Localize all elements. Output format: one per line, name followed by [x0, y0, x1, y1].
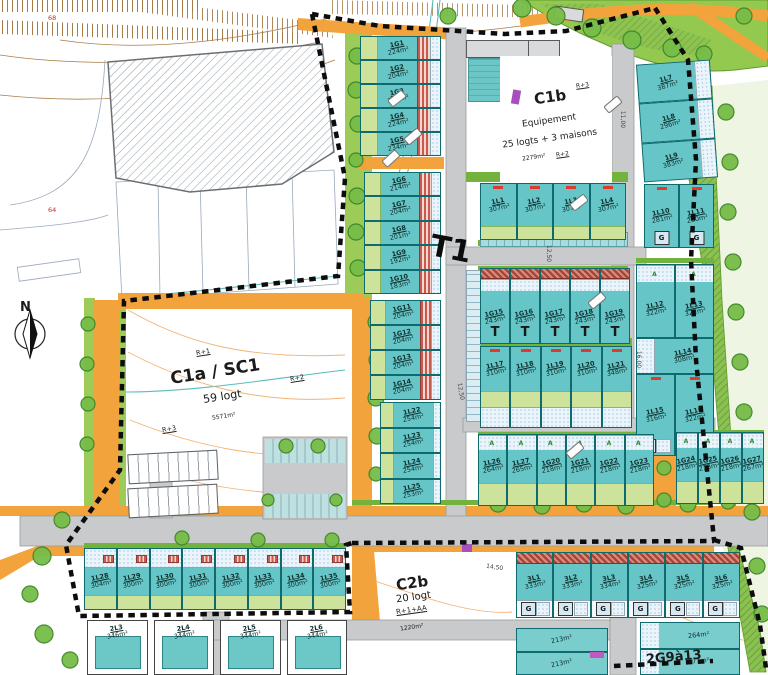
lot-strip-3l: 3L1333m² G 3L2333m² G 3L3334m² G: [516, 552, 740, 618]
lot-row-south-a: A 1L26264m² A 1L27265m² A 1G20218m² A 1G…: [478, 434, 654, 506]
garden-strip: [603, 391, 631, 406]
garden-strip: [365, 197, 381, 219]
lot-parcel: 1L14308m²: [636, 338, 714, 374]
garden-strip: [361, 109, 378, 131]
garage-box: G: [558, 602, 573, 616]
parking-cell: [541, 279, 569, 291]
lot-parcel: A 1G25218m²: [698, 432, 720, 504]
garden-strip: [365, 222, 381, 244]
lot-label: 1G6214m²: [388, 175, 412, 193]
lot-label: 1G2204m²: [386, 63, 410, 81]
parking-cell: [430, 109, 440, 131]
lot-row-g15: 1G15243m² T 1G16243m² T 1G17243m² T: [480, 268, 630, 344]
lot-label: 1G9192m²: [388, 248, 412, 266]
parking-cell: [699, 139, 717, 177]
dim-11-00: 11,00: [619, 111, 626, 128]
garden-strip: [554, 226, 589, 239]
lot-label: 1L22254m²: [401, 406, 425, 424]
garden-strip: [371, 376, 386, 399]
a-mark: A: [652, 271, 657, 278]
garden-strip: [721, 481, 741, 503]
garden-strip: [361, 37, 378, 59]
lot-parcel: 2L6344m²: [287, 620, 348, 675]
lot-parcel: 1L28304m²: [84, 548, 117, 610]
lot-parcel: 1L32300m²: [215, 548, 248, 610]
lot-parcel: 1G4224m²: [360, 108, 441, 132]
contour-label-68: 68: [48, 14, 56, 22]
brick-band: [601, 269, 629, 279]
lot-parcel: 2L3346m²: [87, 620, 148, 675]
lot-label: 1G20218m²: [539, 457, 563, 475]
a-mark: A: [607, 440, 612, 447]
lot-label: 3L5325m²: [672, 573, 696, 591]
parking-cell: [282, 549, 313, 568]
garage-roof-hatch: [168, 555, 179, 563]
lot-row-307: 1L1307m² 1L2307m² 1L3307m² 1L4307m²: [480, 183, 626, 240]
lot-label: 1G15243m²: [483, 308, 507, 326]
parking-cell: [430, 85, 440, 107]
garden-strip: [314, 595, 345, 609]
lot-parcel: 1G1224m²: [360, 36, 441, 60]
lot-label: 1L30300m²: [154, 572, 178, 590]
garage-roof-hatch: [103, 555, 114, 563]
lot-parcel: 1L8296m²: [639, 99, 716, 143]
lot-parcel: 1L9383m²: [641, 138, 718, 182]
parking-cell: [686, 602, 700, 616]
garage-row: G: [704, 600, 739, 617]
lot-label: 1L21348m²: [605, 360, 629, 378]
contour-label-64: 64: [48, 206, 56, 214]
garage-roof-hatch: [417, 109, 430, 131]
parking-cell: A: [699, 433, 719, 448]
garden-strip: [365, 246, 381, 268]
lot-parcel: 1L25253m²: [380, 479, 441, 505]
garden-strip: [371, 351, 386, 374]
lot-label: 1L18310m²: [514, 360, 538, 378]
parking-cell: [430, 61, 440, 83]
parking-cell: [648, 602, 662, 616]
brick-band: [517, 553, 552, 564]
lot-strip-west-l: 1L22254m² 1L23254m² 1L24254m² 1L25253m²: [380, 402, 441, 504]
lot-strip-east-edge: 1L7387m² 1L8296m² 1L9383m²: [636, 60, 718, 183]
parking-cell: [723, 602, 737, 616]
garage-roof-hatch: [419, 271, 431, 293]
c1a-garage-row2: [127, 484, 218, 519]
lot-label: 1L11280m²: [685, 207, 709, 225]
a-mark: A: [636, 440, 641, 447]
parking-cell: [511, 407, 539, 427]
parking-cell: [431, 351, 440, 374]
house-footprint: [295, 636, 341, 669]
garage-roof-hatch: [420, 376, 431, 399]
garage-box: G: [670, 602, 685, 616]
brick-band: [554, 553, 589, 564]
lot-parcel: 1L35300m²: [313, 548, 346, 610]
site-plan-map: 1G1224m² 1G2204m² 1G3214m² 1G4224m² 1G52: [0, 0, 768, 675]
lot-parcel: 1G10183m²: [364, 270, 441, 294]
lot-parcel: 3L4325m² G: [628, 552, 665, 618]
lot-parcel: 1G19243m² T: [600, 268, 630, 344]
garden-strip: [183, 595, 214, 609]
lot-parcel: 3L1333m² G: [516, 552, 553, 618]
garage-roof-hatch: [420, 351, 431, 374]
dim-16-00: 16,00: [635, 351, 642, 368]
garden-strip: [508, 483, 535, 505]
lot-east-mid: 1L14308m²: [636, 338, 714, 374]
garden-strip: [481, 226, 516, 239]
lot-parcel: 3L3334m² G: [591, 552, 628, 618]
parking-cell: [656, 439, 671, 453]
parking-cell: A: [538, 435, 565, 450]
lot-label: 3L6325m²: [709, 573, 733, 591]
lot-row-l17: 1L17310m² 1L18310m² 1L19310m² 1L20310m² …: [480, 346, 632, 428]
lot-parcel: 1L4307m²: [590, 183, 627, 240]
lot-label: 1L29300m²: [121, 572, 145, 590]
lot-label: 1L2307m²: [523, 196, 547, 214]
lot-label: 264m²: [688, 631, 710, 640]
parking-cell: [431, 271, 440, 293]
lot-label: 1L12322m²: [644, 300, 668, 318]
garage-roof-hatch: [136, 555, 147, 563]
lot-label: 1G11204m²: [391, 303, 415, 321]
garden-strip: [371, 301, 386, 324]
garden-strip: [361, 61, 378, 83]
lot-parcel: 1L1307m²: [480, 183, 517, 240]
garden-strip: [381, 480, 394, 504]
lot-parcel: 2L4344m²: [154, 620, 215, 675]
garden-strip: [151, 595, 182, 609]
lot-parcel: A 1L27265m²: [507, 434, 536, 506]
parking-cell: [694, 61, 712, 99]
a-mark: A: [489, 440, 494, 447]
lot-parcel: 1L29300m²: [117, 548, 150, 610]
garage-roof-hatch: [332, 555, 343, 563]
parking-cell: A: [626, 435, 653, 450]
garden-strip: [249, 595, 280, 609]
lot-label: 3L2333m²: [560, 573, 584, 591]
parking-cell: [574, 602, 588, 616]
garage-box: G: [689, 231, 704, 245]
lot-label: 1G14204m²: [391, 378, 415, 396]
garage-row: G: [666, 600, 701, 617]
lot-label: 1G4224m²: [386, 111, 410, 129]
lot-parcel: 1G15243m² T: [480, 268, 510, 344]
garage-row: G: [592, 600, 627, 617]
lot-label: 213m²: [551, 658, 573, 669]
a-mark: A: [691, 271, 696, 278]
garage-box: G: [633, 602, 648, 616]
brick-band: [571, 269, 599, 279]
lot-label: 1L16322m²: [683, 406, 707, 424]
lot-parcel: 1L23254m²: [380, 428, 441, 454]
lot-label: 1L17310m²: [483, 360, 507, 378]
brick-band: [541, 269, 569, 279]
parking-cell: [431, 376, 440, 399]
lot-label: 1L33300m²: [252, 572, 276, 590]
street-parking-strip: [466, 270, 481, 422]
t-house-footprint: T: [611, 326, 620, 339]
parking-cell: A: [721, 433, 741, 448]
garage-roof-hatch: [420, 326, 431, 349]
lot-parcel: 213m²: [516, 628, 608, 652]
lot-parcel: 1G8201m²: [364, 221, 441, 245]
lot-label: 3L3334m²: [597, 573, 621, 591]
lot-label: 1G13204m²: [391, 353, 415, 371]
garden-strip: [572, 391, 600, 406]
parking-cell: A: [677, 433, 697, 448]
parking-cell: A: [637, 265, 674, 282]
lot-parcel: A 1G24218m²: [676, 432, 698, 504]
garage-row: G: [629, 600, 664, 617]
brick-band: [704, 553, 739, 564]
lot-label: 1L27265m²: [510, 457, 534, 475]
lot-label: 1L4307m²: [596, 196, 620, 214]
lot-pair-east: 1L10281m² G 1L11280m² G: [644, 184, 714, 248]
lot-parcel: A 1G27267m²: [742, 432, 764, 504]
lot-parcel: 1L11280m² G: [679, 184, 714, 248]
lot-parcel: 1L18310m²: [510, 346, 540, 428]
garden-strip: [567, 483, 594, 505]
lot-parcel: A 1L26264m²: [478, 434, 507, 506]
lot-label: 1G7204m²: [388, 199, 412, 217]
lot-label: 3L1333m²: [523, 573, 547, 591]
garden-strip: [481, 391, 509, 406]
lot-label: 1L15316m²: [644, 406, 668, 424]
lot-label: 1L31300m²: [187, 572, 211, 590]
garage-roof-hatch: [299, 555, 310, 563]
lot-label: 3L4325m²: [635, 573, 659, 591]
garden-strip: [511, 391, 539, 406]
t1-label: T1: [427, 228, 474, 270]
lot-label: 1G25218m²: [698, 455, 720, 473]
parking-cell: [433, 429, 440, 453]
a-mark: A: [684, 438, 689, 445]
garden-strip: [596, 483, 623, 505]
lot-parcel: 1L31300m²: [182, 548, 215, 610]
parking-cell: [481, 407, 509, 427]
lot-parcel: 1L20310m²: [571, 346, 601, 428]
garage-roof-hatch: [419, 173, 431, 195]
parking-cell: [151, 549, 182, 568]
parking-cell: [611, 602, 625, 616]
lot-parcel: 1G17243m² T: [540, 268, 570, 344]
lot-label: 1L19310m²: [544, 360, 568, 378]
lot-parcel: 1L7387m²: [636, 60, 713, 104]
lot-parcel: A 1G20218m²: [537, 434, 566, 506]
lot-label: 1L24254m²: [401, 457, 425, 475]
garden-strip: [365, 271, 381, 293]
lot-parcel: 1G12204m²: [370, 325, 441, 350]
lot-parcel: A 1L13322m²: [675, 264, 714, 338]
lot-parcel: 1G5234m²: [360, 132, 441, 156]
garage-roof-hatch: [417, 61, 430, 83]
garden-strip: [538, 483, 565, 505]
lot-parcel: 1G14204m²: [370, 375, 441, 400]
garden-strip: [282, 595, 313, 609]
garden-strip: [85, 595, 116, 609]
lot-label: 1L26264m²: [481, 457, 505, 475]
brick-band: [629, 553, 664, 564]
parking-cell: [511, 279, 539, 291]
lot-parcel: 1G13204m²: [370, 350, 441, 375]
garage-row: G: [554, 600, 589, 617]
a-mark: A: [706, 438, 711, 445]
garage-roof-hatch: [417, 85, 430, 107]
garden-strip: [626, 483, 653, 505]
lot-label: 1G8201m²: [388, 224, 412, 242]
brick-band: [666, 553, 701, 564]
lot-label: 1L9383m²: [660, 151, 684, 171]
house-footprint: [95, 636, 141, 669]
lot-label: 1L23254m²: [401, 431, 425, 449]
garage-roof-hatch: [420, 301, 431, 324]
lot-label: 1G23218m²: [627, 457, 651, 475]
a-mark: A: [548, 440, 553, 447]
garage-box: G: [521, 602, 536, 616]
lot-label: 1L32300m²: [219, 572, 243, 590]
lot-label: 1G24218m²: [676, 455, 698, 473]
lot-label: 1G12204m²: [391, 328, 415, 346]
lot-parcel: 1G16243m² T: [510, 268, 540, 344]
lot-label: 1L35300m²: [318, 572, 342, 590]
parking-cell: [430, 37, 440, 59]
parking-cell: [601, 279, 629, 291]
parking-cell: [542, 407, 570, 427]
lot-strip-southwest: 1L28304m² 1L29300m² 1L30300m² 1L31300m² …: [84, 548, 346, 610]
garden-strip: [361, 85, 378, 107]
parking-cell: [433, 480, 440, 504]
lot-parcel: 1L2307m²: [517, 183, 554, 240]
garden-strip: [118, 595, 149, 609]
parking-cell: [603, 407, 631, 427]
garage-box: G: [596, 602, 611, 616]
garage-box: G: [654, 231, 669, 245]
lot-label: 1L20310m²: [574, 360, 598, 378]
parking-cell: [536, 602, 550, 616]
parking-cell: [431, 173, 440, 195]
lot-parcel: 1L22254m²: [380, 402, 441, 428]
lot-row-2l: 2L3346m² 2L4344m² 2L5344m² 2L6344m²: [84, 620, 350, 675]
lot-label: 1L14308m²: [672, 347, 696, 365]
lot-parcel: 1L3307m²: [553, 183, 590, 240]
parking-cell: [431, 301, 440, 324]
parking-cell: A: [596, 435, 623, 450]
parking-cell: [696, 100, 714, 138]
garden-strip: [361, 133, 378, 155]
utility-mark: [590, 652, 604, 658]
garden-strip: [518, 226, 553, 239]
lot-col-east-top: A 1L12322m² A 1L13322m²: [636, 264, 714, 338]
lot-label: 1G18243m²: [573, 308, 597, 326]
a-mark: A: [728, 438, 733, 445]
lot-parcel: A 1G23218m²: [625, 434, 654, 506]
lot-parcel: 1L17310m²: [480, 346, 510, 428]
lot-label: 1L8296m²: [657, 112, 681, 132]
parking-cell: [216, 549, 247, 568]
a-mark: A: [519, 440, 524, 447]
lot-parcel: 1L30300m²: [150, 548, 183, 610]
parking-cell: [641, 623, 659, 648]
garage-box: G: [708, 602, 723, 616]
garage-roof-hatch: [419, 222, 431, 244]
existing-building-hatched: [108, 44, 334, 192]
lot-parcel: A 1L12322m²: [636, 264, 675, 338]
lot-label: 1G27267m²: [742, 455, 764, 473]
parking-cell: [481, 279, 509, 291]
garage-roof-hatch: [417, 37, 430, 59]
lot-label: 1L13322m²: [683, 300, 707, 318]
garage-roof-hatch: [419, 197, 431, 219]
lot-label: 1G26218m²: [720, 455, 742, 473]
lot-label: 1G1224m²: [386, 39, 410, 57]
brick-band: [511, 269, 539, 279]
garage-roof-hatch: [267, 555, 278, 563]
lot-parcel: 1L10281m² G: [644, 184, 679, 248]
parking-cell: [314, 549, 345, 568]
lot-parcel: 1L19310m²: [541, 346, 571, 428]
garden-strip: [677, 481, 697, 503]
lot-label: 1L34300m²: [285, 572, 309, 590]
lot-parcel: A 1G22218m²: [595, 434, 624, 506]
parking-cell: [118, 549, 149, 568]
a-mark: A: [750, 438, 755, 445]
c1a-garage-row1: [127, 450, 218, 485]
lot-parcel: 1L24254m²: [380, 453, 441, 479]
lot-label: 1L28304m²: [88, 572, 112, 590]
lot-label: 1G19243m²: [603, 308, 627, 326]
lot-label: 1G16243m²: [513, 308, 537, 326]
lot-label: 1G17243m²: [543, 308, 567, 326]
lot-label: 1L1307m²: [486, 196, 510, 214]
lot-parcel: 1L34300m²: [281, 548, 314, 610]
parking-cell: [85, 549, 116, 568]
lot-parcel: 2L5344m²: [220, 620, 281, 675]
garden-strip: [542, 391, 570, 406]
lot-parcel: 264m²: [640, 622, 740, 649]
parking-cell: A: [743, 433, 763, 448]
parking-cell: [433, 454, 440, 478]
garden-strip: [371, 326, 386, 349]
lot-label: 1L25253m²: [401, 482, 425, 500]
parking-cell: A: [676, 265, 713, 282]
lot-label: 1L7387m²: [654, 72, 678, 92]
garden-strip: [381, 454, 394, 478]
parking-cell: [431, 197, 440, 219]
parking-cell: [249, 549, 280, 568]
lot-parcel: 3L5325m² G: [665, 552, 702, 618]
garden-strip: [365, 173, 381, 195]
parking-cell: [572, 407, 600, 427]
parking-cell: A: [508, 435, 535, 450]
brick-band: [481, 269, 509, 279]
lot-parcel: 3L6325m² G: [703, 552, 740, 618]
lot-label: 1G10183m²: [388, 273, 412, 291]
lot-strip-west-c: 1G11204m² 1G12204m² 1G13204m² 1G14204m²: [370, 300, 441, 400]
lot-parcel: 1G2204m²: [360, 60, 441, 84]
utility-mark: [462, 544, 472, 552]
north-label: N: [20, 300, 31, 315]
garden-strip: [743, 481, 763, 503]
lot-parcel: 1L33300m²: [248, 548, 281, 610]
garage-roof-hatch: [234, 555, 245, 563]
garden-strip: [699, 481, 719, 503]
garden-strip: [381, 429, 394, 453]
dim-12-50-a: 12,50: [545, 245, 552, 262]
lot-strip-west-b: 1G6214m² 1G7204m² 1G8201m² 1G9192m² 1G10: [364, 172, 441, 294]
parking-cell: [431, 326, 440, 349]
parking-cell: [571, 279, 599, 291]
lot-parcel: 3L2333m² G: [553, 552, 590, 618]
